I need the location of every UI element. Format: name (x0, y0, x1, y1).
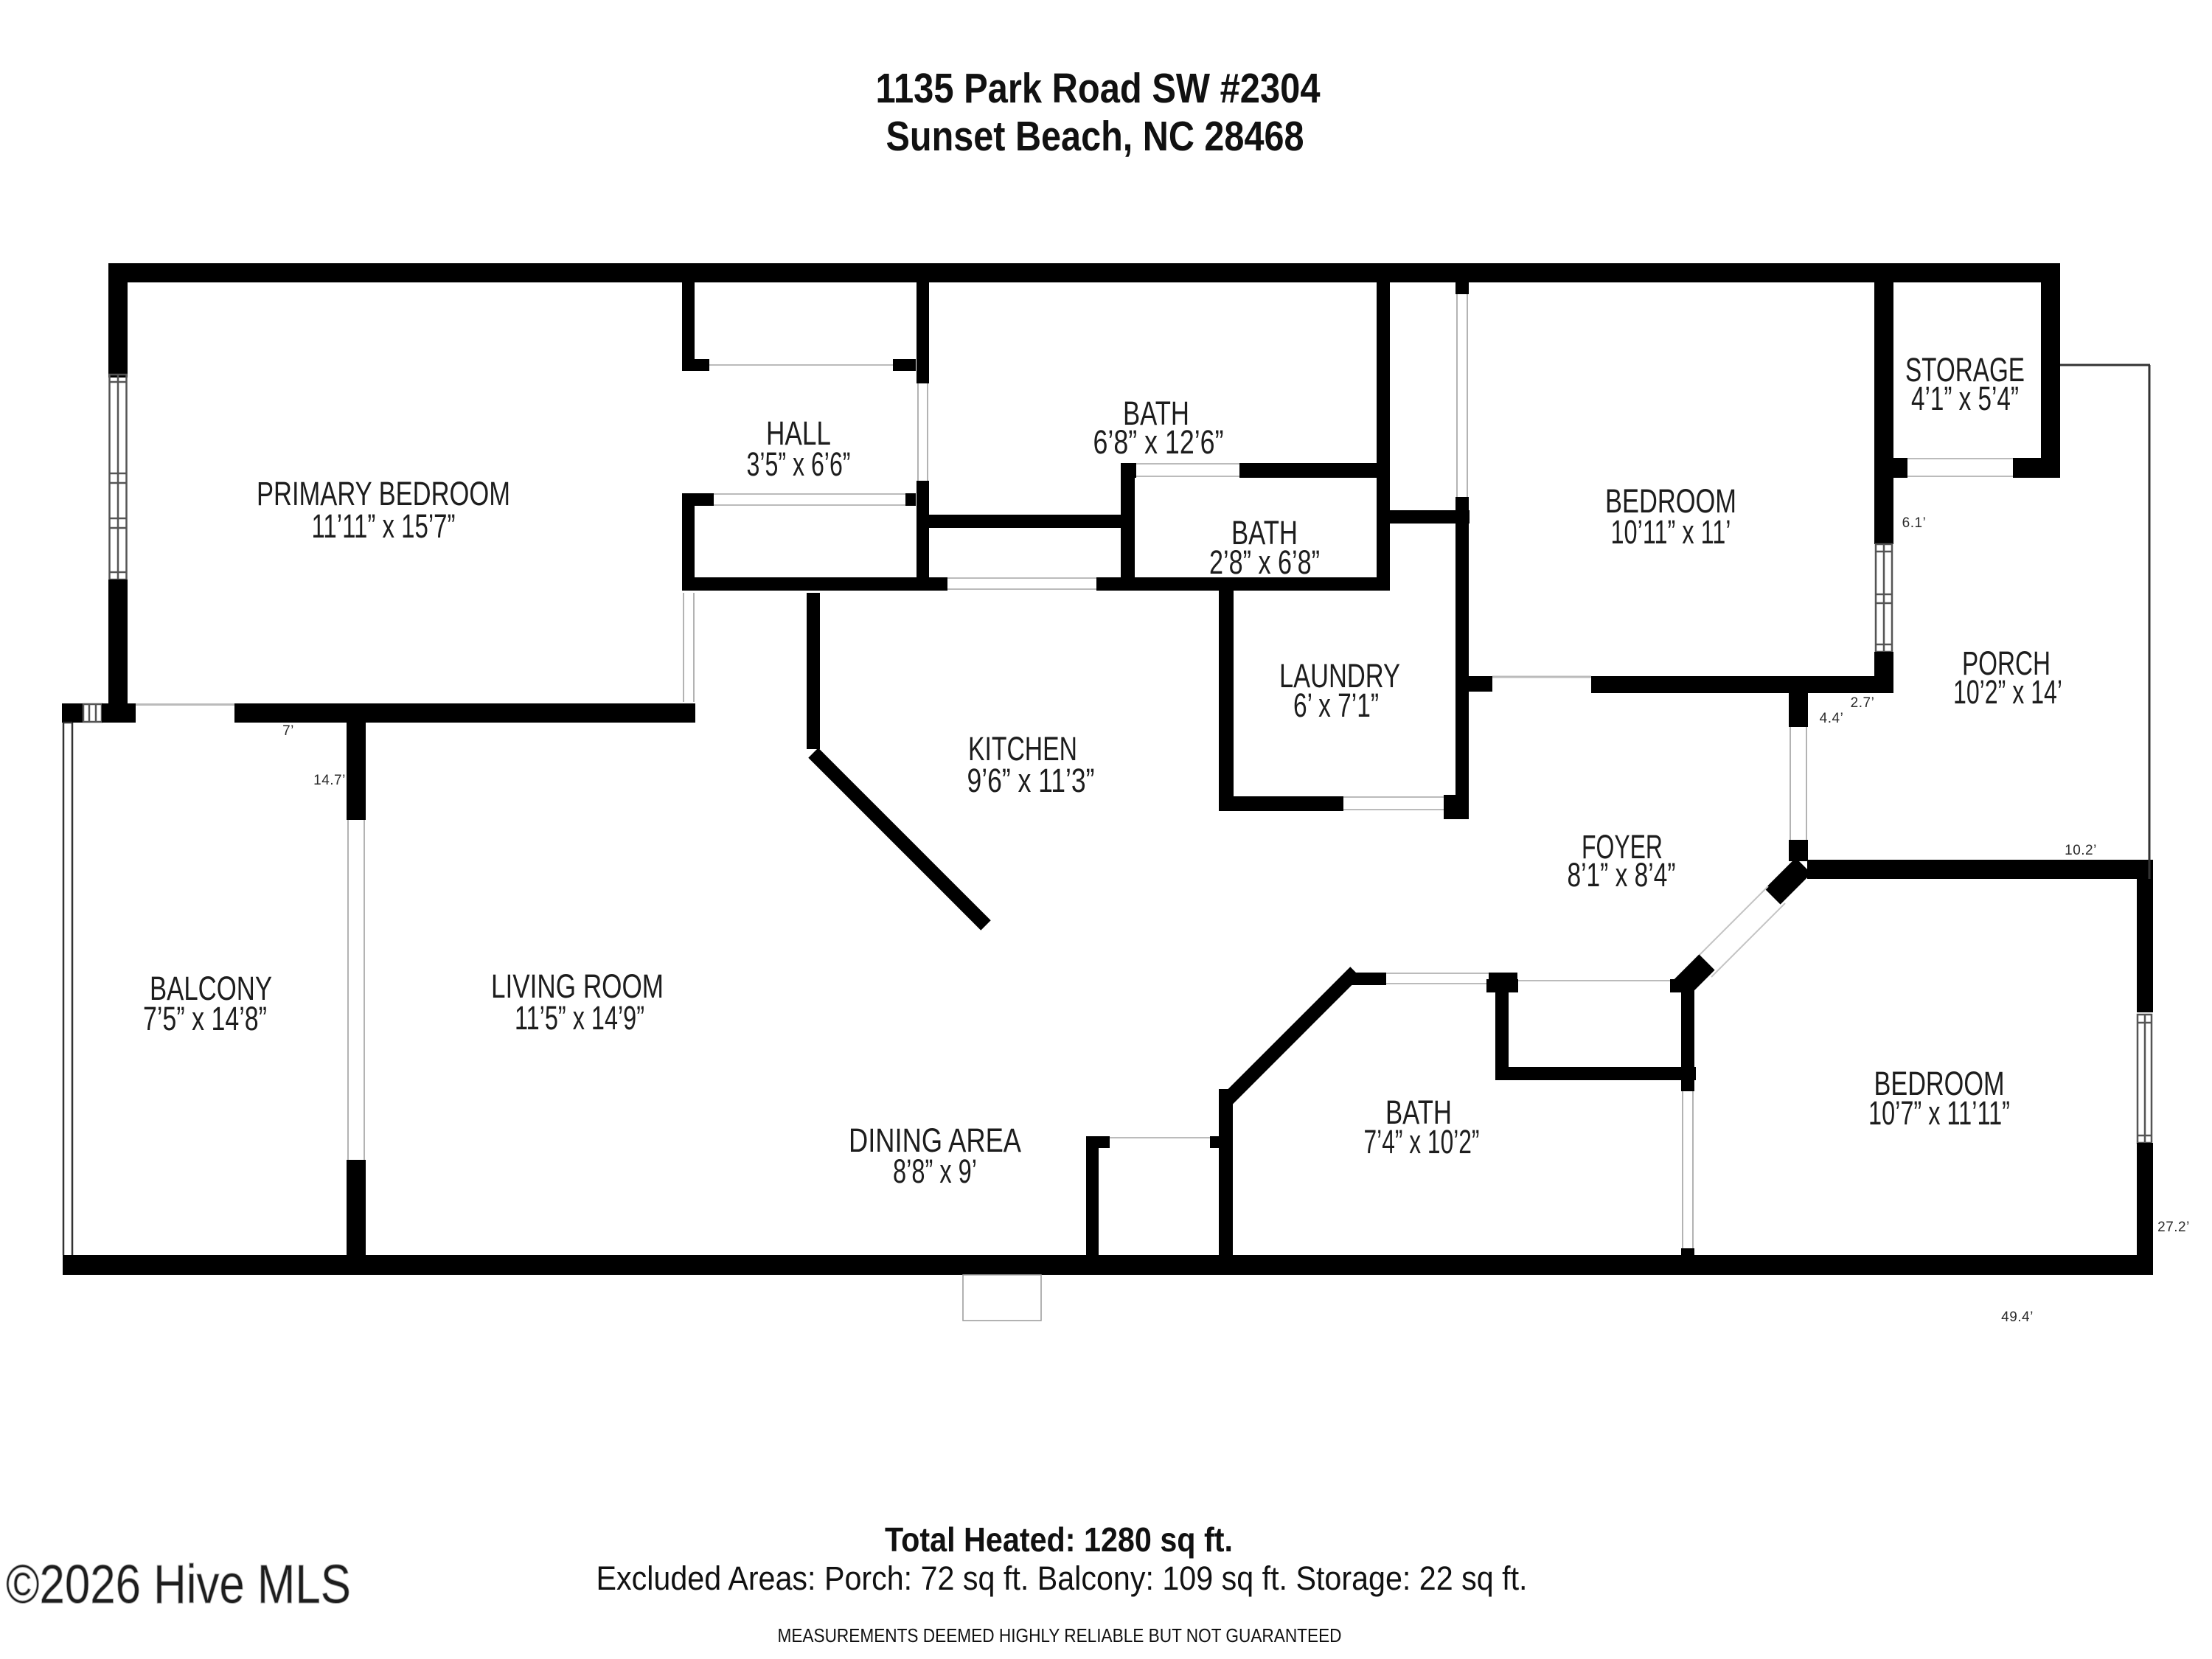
svg-text:11’5” x 14’9”: 11’5” x 14’9” (515, 999, 644, 1037)
svg-text:6’8” x 12’6”: 6’8” x 12’6” (1093, 423, 1224, 461)
svg-text:4.4’: 4.4’ (1820, 711, 1844, 726)
svg-text:2.7’: 2.7’ (1851, 695, 1875, 711)
svg-text:9’6” x 11’3”: 9’6” x 11’3” (967, 762, 1095, 799)
svg-text:10’11” x 11’: 10’11” x 11’ (1611, 513, 1731, 551)
svg-text:7’4” x 10’2”: 7’4” x 10’2” (1364, 1123, 1480, 1161)
svg-text:10’7” x 11’11”: 10’7” x 11’11” (1868, 1094, 2010, 1132)
svg-text:10’2” x 14’: 10’2” x 14’ (1953, 673, 2062, 711)
svg-text:4’1” x 5’4”: 4’1” x 5’4” (1911, 380, 2019, 417)
svg-text:MEASUREMENTS DEEMED HIGHLY REL: MEASUREMENTS DEEMED HIGHLY RELIABLE BUT … (778, 1624, 1342, 1646)
svg-text:2’8” x 6’8”: 2’8” x 6’8” (1209, 543, 1320, 581)
svg-text:6.1’: 6.1’ (1902, 515, 1927, 531)
svg-text:7’: 7’ (282, 723, 294, 739)
svg-text:14.7’: 14.7’ (313, 773, 346, 788)
svg-text:3’5” x 6’6”: 3’5” x 6’6” (747, 445, 851, 483)
svg-text:1135 Park Road SW #2304: 1135 Park Road SW #2304 (876, 65, 1321, 112)
svg-text:©2026 Hive MLS: ©2026 Hive MLS (6, 1554, 351, 1615)
svg-text:8’1” x 8’4”: 8’1” x 8’4” (1568, 856, 1676, 894)
svg-text:7’5” x 14’8”: 7’5” x 14’8” (143, 1000, 267, 1037)
svg-text:8’8” x 9’: 8’8” x 9’ (893, 1152, 977, 1190)
svg-text:27.2’: 27.2’ (2157, 1220, 2190, 1235)
svg-text:6’ x 7’1”: 6’ x 7’1” (1293, 686, 1379, 724)
svg-text:Excluded Areas: Porch: 72 sq f: Excluded Areas: Porch: 72 sq ft. Balcony… (597, 1559, 1528, 1597)
svg-text:Sunset Beach, NC 28468: Sunset Beach, NC 28468 (886, 113, 1304, 160)
svg-text:11’11” x 15’7”: 11’11” x 15’7” (312, 507, 456, 545)
svg-text:10.2’: 10.2’ (2065, 843, 2097, 858)
svg-text:Total Heated: 1280 sq ft.: Total Heated: 1280 sq ft. (885, 1520, 1233, 1559)
svg-text:49.4’: 49.4’ (2001, 1310, 2034, 1325)
